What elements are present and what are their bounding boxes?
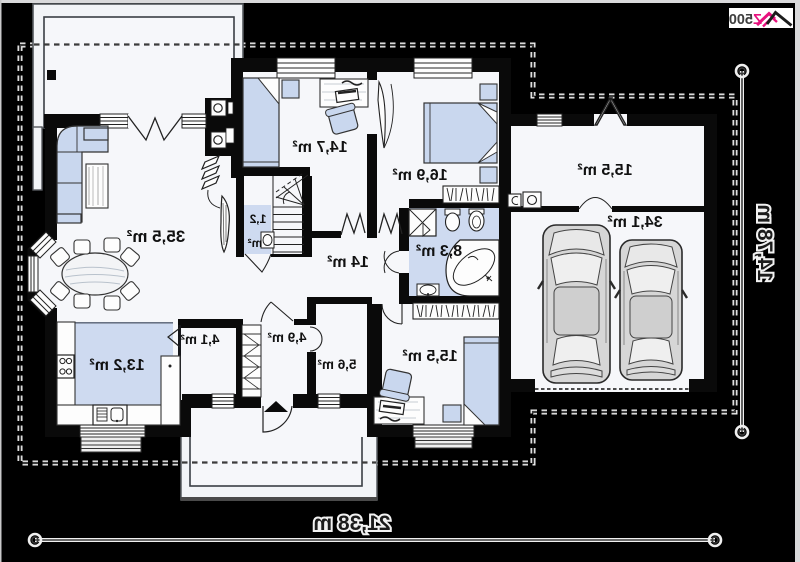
svg-text:21,38 m: 21,38 m: [313, 512, 390, 535]
svg-text:8,3 m²: 8,3 m²: [416, 243, 462, 260]
svg-text:Z: Z: [753, 12, 762, 28]
svg-text:15,5 m²: 15,5 m²: [577, 162, 632, 179]
svg-text:16,9 m²: 16,9 m²: [392, 167, 447, 184]
svg-text:500: 500: [729, 12, 753, 28]
svg-text:13,2 m²: 13,2 m²: [89, 357, 144, 374]
svg-text:m²: m²: [248, 236, 263, 250]
svg-text:5,6 m²: 5,6 m²: [317, 357, 357, 372]
svg-text:35,5 m²: 35,5 m²: [126, 227, 185, 246]
svg-text:14,78 m: 14,78 m: [753, 204, 776, 281]
svg-text:15,5 m²: 15,5 m²: [402, 348, 457, 365]
svg-text:14,7 m²: 14,7 m²: [292, 139, 347, 156]
svg-text:4,1 m²: 4,1 m²: [180, 332, 220, 347]
svg-text:34,1 m²: 34,1 m²: [607, 214, 662, 231]
svg-text:14 m²: 14 m²: [327, 254, 369, 271]
svg-text:4,9 m²: 4,9 m²: [267, 330, 307, 345]
svg-text:1,2: 1,2: [249, 212, 266, 226]
